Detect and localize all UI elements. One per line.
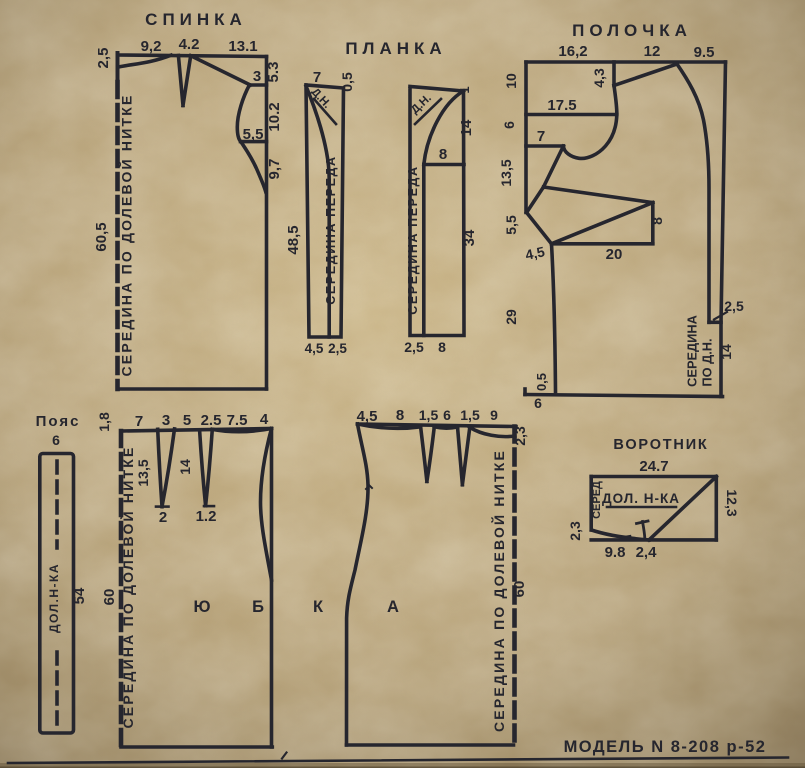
svg-text:13,5: 13,5: [498, 159, 514, 186]
svg-text:7: 7: [135, 413, 143, 430]
svg-text:МОДЕЛЬ N 8-208 р-52: МОДЕЛЬ N 8-208 р-52: [564, 738, 767, 756]
svg-text:10: 10: [503, 73, 519, 89]
svg-text:СЕРЕДИНА ПО ДОЛЕВОЙ НИТКЕ: СЕРЕДИНА ПО ДОЛЕВОЙ НИТКЕ: [118, 94, 135, 377]
svg-text:9.8: 9.8: [605, 544, 626, 561]
svg-text:СЕРЕДИНА: СЕРЕДИНА: [685, 315, 700, 387]
svg-text:4,5: 4,5: [357, 408, 378, 425]
svg-text:7.5: 7.5: [227, 412, 248, 429]
svg-text:60: 60: [511, 581, 528, 598]
svg-text:3: 3: [162, 412, 170, 429]
svg-text:СЕРЕД: СЕРЕД: [591, 481, 603, 519]
svg-text:4,3: 4,3: [591, 68, 607, 88]
svg-text:2,5: 2,5: [95, 48, 112, 69]
svg-text:ВОРОТНИК: ВОРОТНИК: [613, 437, 708, 453]
svg-text:4,5: 4,5: [305, 341, 324, 356]
svg-text:60,5: 60,5: [93, 222, 110, 251]
svg-text:54: 54: [71, 587, 88, 604]
svg-text:20: 20: [606, 246, 623, 263]
svg-text:14: 14: [177, 459, 193, 475]
svg-text:6: 6: [52, 432, 60, 448]
svg-text:5,5: 5,5: [243, 126, 264, 143]
svg-text:СЕРЕДИНА ПЕРЕДА: СЕРЕДИНА ПЕРЕДА: [324, 155, 338, 304]
svg-text:13.1: 13.1: [228, 38, 257, 55]
svg-text:Ю: Ю: [193, 598, 210, 616]
svg-text:60: 60: [101, 589, 118, 606]
svg-text:9,2: 9,2: [141, 38, 162, 55]
svg-text:13,5: 13,5: [135, 459, 151, 486]
svg-text:9,7: 9,7: [266, 159, 283, 180]
svg-text:СЕРЕДИНА ПО ДОЛЕВОЙ НИТКЕ: СЕРЕДИНА ПО ДОЛЕВОЙ НИТКЕ: [490, 449, 507, 732]
svg-text:14: 14: [458, 119, 475, 136]
svg-text:К: К: [313, 598, 324, 616]
svg-text:ДОЛ.Н-КА: ДОЛ.Н-КА: [47, 563, 61, 633]
svg-text:0,5: 0,5: [339, 72, 355, 92]
svg-text:12,3: 12,3: [724, 489, 740, 516]
svg-text:А: А: [387, 598, 399, 616]
svg-text:8: 8: [439, 146, 447, 163]
svg-text:1,8: 1,8: [96, 412, 112, 432]
svg-text:24.7: 24.7: [639, 458, 668, 475]
svg-text:4: 4: [260, 411, 269, 428]
svg-text:2,5: 2,5: [404, 339, 424, 355]
svg-text:48,5: 48,5: [285, 225, 302, 254]
svg-text:2: 2: [159, 509, 167, 526]
svg-text:9: 9: [490, 407, 498, 423]
svg-text:СЕРЕДИНА ПЕРЕДА: СЕРЕДИНА ПЕРЕДА: [406, 165, 420, 314]
svg-text:4.2: 4.2: [179, 36, 200, 53]
svg-text:5.3: 5.3: [265, 62, 282, 83]
svg-text:1: 1: [457, 86, 472, 93]
svg-text:5,5: 5,5: [503, 215, 519, 235]
svg-text:6: 6: [443, 407, 451, 423]
svg-text:СЕРЕДИНА ПО ДОЛЕВОЙ НИТКЕ: СЕРЕДИНА ПО ДОЛЕВОЙ НИТКЕ: [119, 446, 136, 729]
svg-text:2,3: 2,3: [567, 521, 583, 541]
svg-text:2,5: 2,5: [328, 341, 347, 356]
svg-text:8: 8: [649, 217, 665, 225]
svg-text:ПО Д.Н.: ПО Д.Н.: [700, 338, 715, 386]
svg-text:10.2: 10.2: [266, 102, 283, 131]
svg-text:1.2: 1.2: [196, 508, 217, 525]
svg-text:6: 6: [501, 121, 517, 129]
svg-text:ДОЛ. Н-КА: ДОЛ. Н-КА: [602, 491, 680, 506]
svg-text:12: 12: [644, 43, 661, 60]
svg-text:8: 8: [396, 407, 404, 424]
svg-text:6: 6: [534, 395, 542, 411]
svg-text:8: 8: [438, 339, 446, 355]
svg-text:9.5: 9.5: [694, 44, 715, 61]
svg-text:14: 14: [718, 344, 734, 360]
svg-text:29: 29: [503, 309, 519, 325]
svg-text:1,5: 1,5: [419, 407, 439, 423]
svg-text:0,5: 0,5: [534, 373, 549, 391]
svg-text:3: 3: [253, 68, 261, 85]
svg-text:ПОЛОЧКА: ПОЛОЧКА: [572, 21, 692, 40]
svg-text:7: 7: [537, 128, 545, 145]
svg-text:16,2: 16,2: [558, 43, 587, 60]
svg-text:Пояс: Пояс: [36, 413, 81, 430]
svg-text:2,4: 2,4: [636, 544, 658, 561]
svg-text:17.5: 17.5: [547, 97, 576, 114]
svg-text:5: 5: [183, 412, 191, 429]
svg-text:2,5: 2,5: [724, 298, 744, 314]
svg-text:1,5: 1,5: [460, 407, 480, 423]
svg-text:2.5: 2.5: [201, 412, 222, 429]
svg-text:Б: Б: [252, 598, 264, 616]
svg-text:34: 34: [461, 229, 478, 246]
svg-text:СПИНКА: СПИНКА: [145, 10, 247, 29]
svg-text:7: 7: [313, 69, 321, 86]
svg-text:ПЛАНКА: ПЛАНКА: [345, 39, 446, 58]
